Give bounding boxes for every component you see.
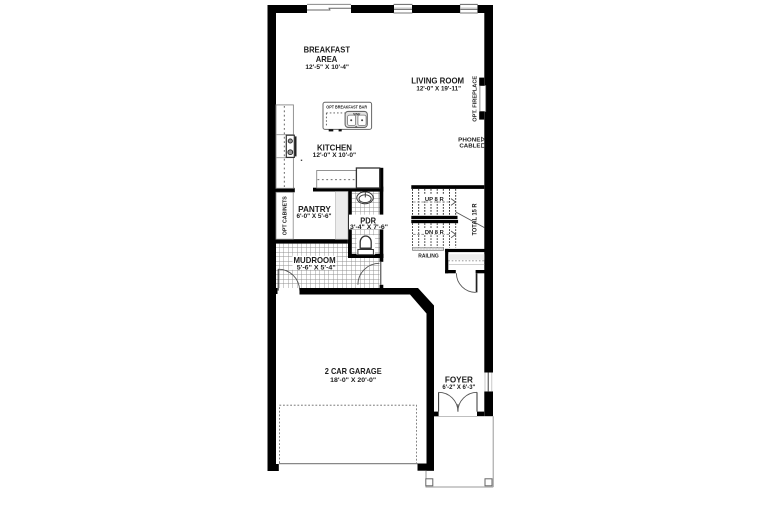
svg-text:LIVING ROOM: LIVING ROOM bbox=[411, 75, 464, 85]
svg-text:6'-2" X 6'-3": 6'-2" X 6'-3" bbox=[442, 384, 475, 391]
svg-text:5'-6" X 5'-4": 5'-6" X 5'-4" bbox=[297, 264, 336, 271]
svg-text:RAILING: RAILING bbox=[418, 253, 439, 259]
svg-text:AREA: AREA bbox=[316, 54, 338, 64]
svg-text:KITCHEN: KITCHEN bbox=[317, 142, 352, 152]
svg-text:CABLE: CABLE bbox=[459, 144, 480, 150]
svg-text:FOYER: FOYER bbox=[445, 374, 473, 384]
svg-text:12'-5" X 10'-4": 12'-5" X 10'-4" bbox=[305, 64, 349, 71]
svg-text:6'-0" X 5'-6": 6'-0" X 5'-6" bbox=[297, 213, 332, 220]
svg-text:2 CAR GARAGE: 2 CAR GARAGE bbox=[325, 366, 382, 376]
svg-text:12'-0" X 10'-0": 12'-0" X 10'-0" bbox=[313, 152, 356, 159]
svg-text:UP 8 R: UP 8 R bbox=[425, 197, 445, 203]
svg-text:OPT. FIREPLACE: OPT. FIREPLACE bbox=[473, 76, 479, 122]
svg-text:OPT BREAKFAST BAR: OPT BREAKFAST BAR bbox=[326, 105, 368, 110]
svg-text:PHONE: PHONE bbox=[458, 137, 481, 143]
svg-text:BREAKFAST: BREAKFAST bbox=[304, 45, 350, 55]
svg-text:12'-0" X 19'-11": 12'-0" X 19'-11" bbox=[416, 86, 461, 93]
svg-text:18'-0" X 20'-0": 18'-0" X 20'-0" bbox=[330, 377, 376, 384]
svg-text:OPT CABINETS: OPT CABINETS bbox=[283, 196, 289, 236]
svg-text:TOTAL 15 R: TOTAL 15 R bbox=[472, 203, 479, 235]
svg-text:DN 8 R: DN 8 R bbox=[425, 230, 445, 236]
svg-text:3'-4" X 7'-6": 3'-4" X 7'-6" bbox=[350, 224, 388, 231]
